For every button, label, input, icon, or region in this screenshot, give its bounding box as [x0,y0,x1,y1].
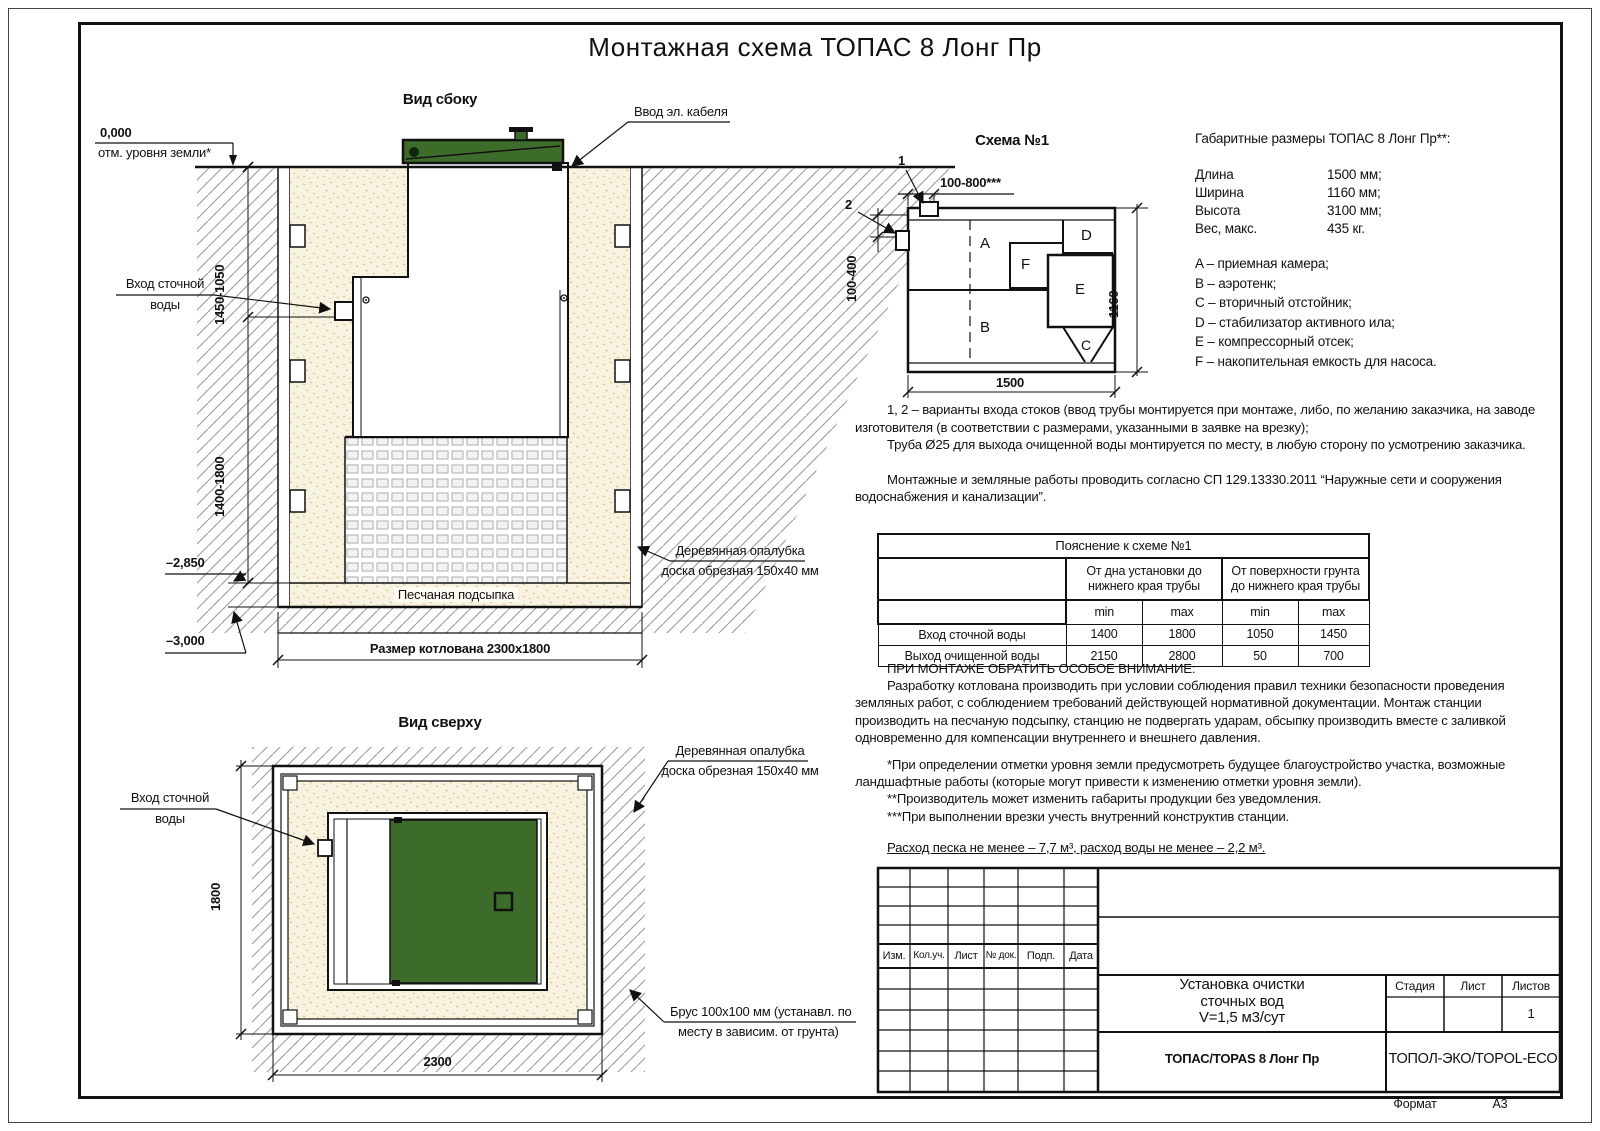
beam-label-line1: Брус 100x100 мм (устанавл. по [670,1004,852,1020]
stamp-product-name: ТОПАС/TOPAS 8 Лонг Пр [1098,1051,1386,1066]
schema-marker-1: 1 [898,153,905,169]
inlet-label-line1: Вход сточной [110,276,220,292]
schema-dim-top: 100-800*** [940,175,1001,191]
dim-lower-depth: 1400-1800 [212,457,228,517]
stamp-header-list: Лист [948,946,984,966]
stamp-sheet-label: Лист [1444,976,1502,996]
formwork-label-top-line1: Деревянная опалубка [660,743,820,759]
top-view-heading: Вид сверху [360,714,520,731]
top-view-dim-height: 1800 [208,883,224,911]
stamp-sheets-label: Листов [1502,976,1560,996]
inlet-label-line2: воды [110,297,220,313]
inlet-label-top-line2: воды [115,811,225,827]
stamp-header-ndok: № док. [984,946,1018,966]
top-view-dim-width: 2300 [380,1054,495,1070]
min-header: min [1066,600,1142,624]
stamp-header-koluch: Кол.уч. [910,946,948,966]
schema-dim-width: 1500 [955,375,1065,391]
formwork-label-line2: доска обрезная 150x40 мм [650,563,830,579]
legend-item: C – вторичный отстойник; [1195,293,1540,313]
note-outlet-pipe: Труба Ø25 для выхода очищенной воды монт… [855,436,1555,454]
footnote-1: *При определении отметки уровня земли пр… [855,756,1550,790]
level-minus-3000: –3,000 [166,633,205,649]
legend-item: A – приемная камера; [1195,254,1540,274]
note-variants: 1, 2 – варианты входа стоков (ввод трубы… [855,401,1555,436]
inlet-label-top-line1: Вход сточной [115,790,225,806]
footnote-2: **Производитель может изменить габариты … [855,790,1550,807]
stamp-company-name: ТОПОЛ-ЭКО/TOPOL-ECO [1386,1051,1560,1067]
legend-item: D – стабилизатор активного ила; [1195,313,1540,333]
inlet-stub-top [318,840,332,856]
drawing-sheet: Монтажная схема ТОПАС 8 Лонг Пр Вид сбок… [0,0,1600,1131]
note-sp-standard: Монтажные и земляные работы проводить со… [855,471,1555,506]
sand-cushion-label: Песчаная подсыпка [350,587,562,603]
consumption-note: Расход песка не менее – 7,7 м³, расход в… [855,839,1550,856]
stamp-header-izm: Изм. [878,946,910,966]
formwork-label-top-line2: доска обрезная 150x40 мм [650,763,830,779]
attention-block: ПРИ МОНТАЖЕ ОБРАТИТЬ ОСОБОЕ ВНИМАНИЕ: Ра… [855,660,1550,856]
schema-heading: Схема №1 [937,132,1087,149]
table-col-group1: От дна установки до нижнего края трубы [1066,558,1222,600]
stamp-project-title: Установка очистки сточных вод V=1,5 м3/с… [1098,977,1386,1027]
max-header: max [1298,600,1369,624]
footnote-3: ***При выполнении врезки учесть внутренн… [855,808,1550,825]
spec-row: Вес, макс. 435 кг. [1195,220,1540,238]
specs-block: Габаритные размеры ТОПАС 8 Лонг Пр**: Дл… [1195,131,1540,371]
schema-marker-2: 2 [845,197,852,213]
max-header: max [1142,600,1222,624]
side-view-heading: Вид сбоку [360,91,520,108]
format-value: А3 [1478,1094,1522,1114]
schema-dim-left: 100-400 [844,256,860,302]
compartment-c: C [1081,337,1091,353]
compartment-e: E [1075,282,1085,298]
station-lid-top [390,820,537,983]
attention-heading: ПРИ МОНТАЖЕ ОБРАТИТЬ ОСОБОЕ ВНИМАНИЕ: [855,660,1550,677]
dim-upper-depth: 1450-1050 [212,265,228,325]
table-title: Пояснение к схеме №1 [878,534,1369,558]
stamp-header-data: Дата [1064,946,1098,966]
attention-body: Разработку котлована производить при усл… [855,677,1550,746]
level-zero-label: 0,000 [100,125,132,141]
level-zero-note: отм. уровня земли* [98,145,211,161]
stamp-stage-label: Стадия [1386,976,1444,996]
compartment-b: B [980,320,990,336]
min-header: min [1222,600,1298,624]
spec-row: Высота 3100 мм; [1195,202,1540,220]
inlet-stub [335,302,353,320]
schema-dim-height: 1160 [1106,291,1122,318]
beam-label-line2: месту в зависим. от грунта) [678,1024,839,1040]
compartment-d: D [1081,228,1092,244]
schema-explain-table: Пояснение к схеме №1 От дна установки до… [877,533,1370,667]
notes-block: 1, 2 – варианты входа стоков (ввод трубы… [855,401,1555,506]
spec-row: Ширина 1160 мм; [1195,184,1540,202]
level-minus-2850: –2,850 [166,555,205,571]
format-label: Формат [1375,1094,1455,1114]
compartment-f: F [1021,257,1030,273]
cable-entry-label: Ввод эл. кабеля [634,104,728,120]
compartment-a: A [980,236,990,252]
compartment-legend: A – приемная камера; B – аэротенк; C – в… [1195,254,1540,371]
formwork-label-line1: Деревянная опалубка [660,543,820,559]
legend-item: F – накопительная емкость для насоса. [1195,352,1540,372]
legend-item: B – аэротенк; [1195,274,1540,294]
table-col-group2: От поверхности грунта до нижнего края тр… [1222,558,1369,600]
page-title: Монтажная схема ТОПАС 8 Лонг Пр [415,32,1215,63]
specs-heading: Габаритные размеры ТОПАС 8 Лонг Пр**: [1195,131,1540,146]
stamp-sheets-value: 1 [1502,1004,1560,1024]
station-lid [403,140,563,163]
table-row: Вход сточной воды 1400 1800 1050 1450 [878,624,1369,646]
legend-item: E – компрессорный отсек; [1195,332,1540,352]
vent-stack [515,131,527,140]
spec-row: Длина 1500 мм; [1195,166,1540,184]
stamp-header-podp: Подп. [1018,946,1064,966]
pit-size-label: Размер котлована 2300x1800 [300,641,620,657]
